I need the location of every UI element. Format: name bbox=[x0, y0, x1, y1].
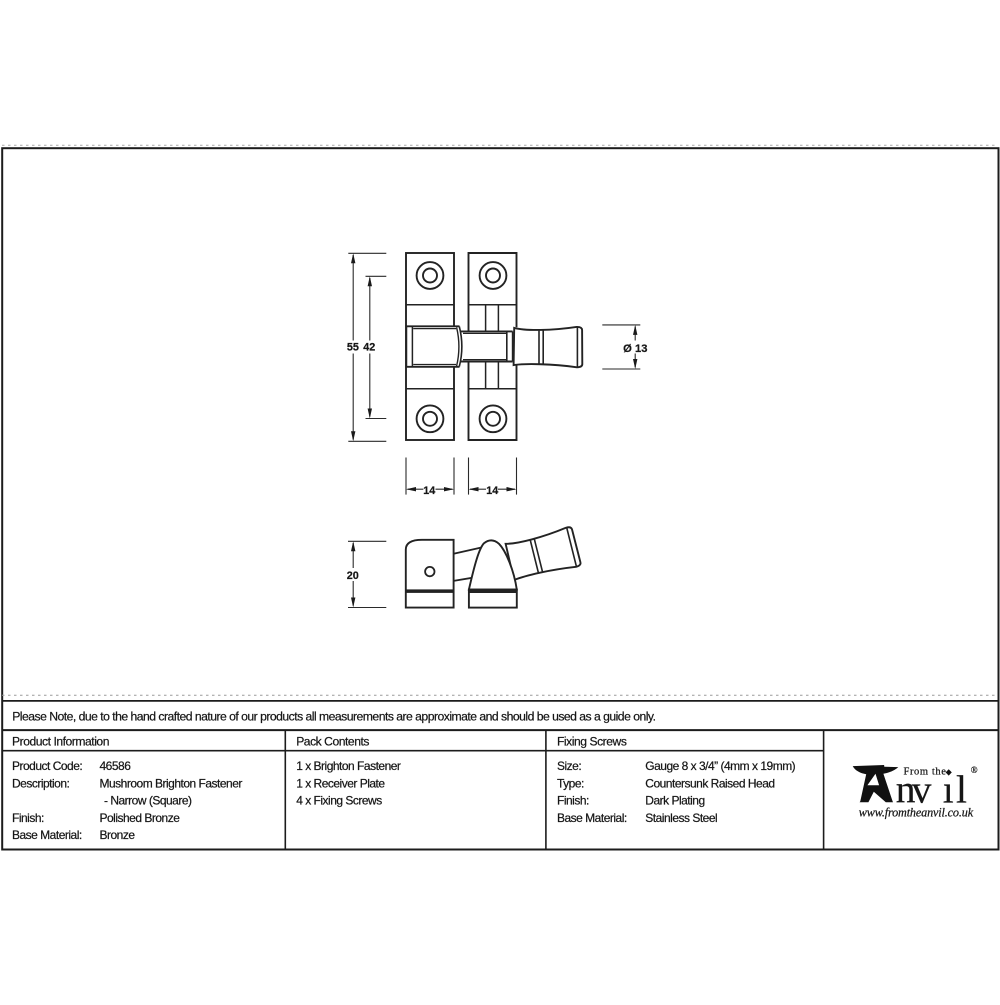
svg-text:46586: 46586 bbox=[100, 759, 132, 773]
svg-text:Fixing Screws: Fixing Screws bbox=[557, 734, 627, 748]
svg-text:Bronze: Bronze bbox=[100, 828, 136, 842]
svg-text:Dark Plating: Dark Plating bbox=[645, 794, 704, 808]
svg-text:55: 55 bbox=[347, 341, 359, 353]
svg-text:14: 14 bbox=[486, 485, 498, 497]
svg-text:®: ® bbox=[971, 765, 978, 775]
svg-text:1 x Receiver Plate: 1 x Receiver Plate bbox=[296, 776, 385, 790]
svg-text:Base Material:: Base Material: bbox=[12, 828, 82, 842]
svg-text:14: 14 bbox=[423, 485, 435, 497]
svg-text:Description:: Description: bbox=[12, 776, 70, 790]
svg-text:Polished Bronze: Polished Bronze bbox=[100, 811, 181, 825]
svg-text:- Narrow (Square): - Narrow (Square) bbox=[104, 794, 192, 808]
svg-text:www.fromtheanvil.co.uk: www.fromtheanvil.co.uk bbox=[859, 805, 974, 819]
svg-text:4 x Fixing Screws: 4 x Fixing Screws bbox=[296, 794, 382, 808]
svg-text:20: 20 bbox=[347, 570, 359, 582]
svg-text:Gauge 8 x 3/4” (4mm x 19mm): Gauge 8 x 3/4” (4mm x 19mm) bbox=[645, 759, 795, 773]
svg-text:Pack Contents: Pack Contents bbox=[296, 734, 369, 748]
svg-text:Base Material:: Base Material: bbox=[557, 811, 627, 825]
svg-text:Size:: Size: bbox=[557, 759, 581, 773]
svg-text:Finish:: Finish: bbox=[557, 794, 589, 808]
svg-text:Countersunk Raised Head: Countersunk Raised Head bbox=[645, 776, 774, 790]
svg-text:Ø 13: Ø 13 bbox=[623, 343, 647, 355]
svg-text:Product Code:: Product Code: bbox=[12, 759, 82, 773]
svg-text:Finish:: Finish: bbox=[12, 811, 44, 825]
svg-text:Type:: Type: bbox=[557, 776, 584, 790]
svg-text:Product Information: Product Information bbox=[12, 734, 109, 748]
svg-text:42: 42 bbox=[363, 341, 375, 353]
svg-text:Stainless Steel: Stainless Steel bbox=[645, 811, 717, 825]
svg-text:1 x Brighton Fastener: 1 x Brighton Fastener bbox=[296, 759, 401, 773]
svg-text:Mushroom Brighton Fastener: Mushroom Brighton Fastener bbox=[100, 776, 243, 790]
svg-text:Please Note, due to the hand c: Please Note, due to the hand crafted nat… bbox=[12, 710, 655, 724]
